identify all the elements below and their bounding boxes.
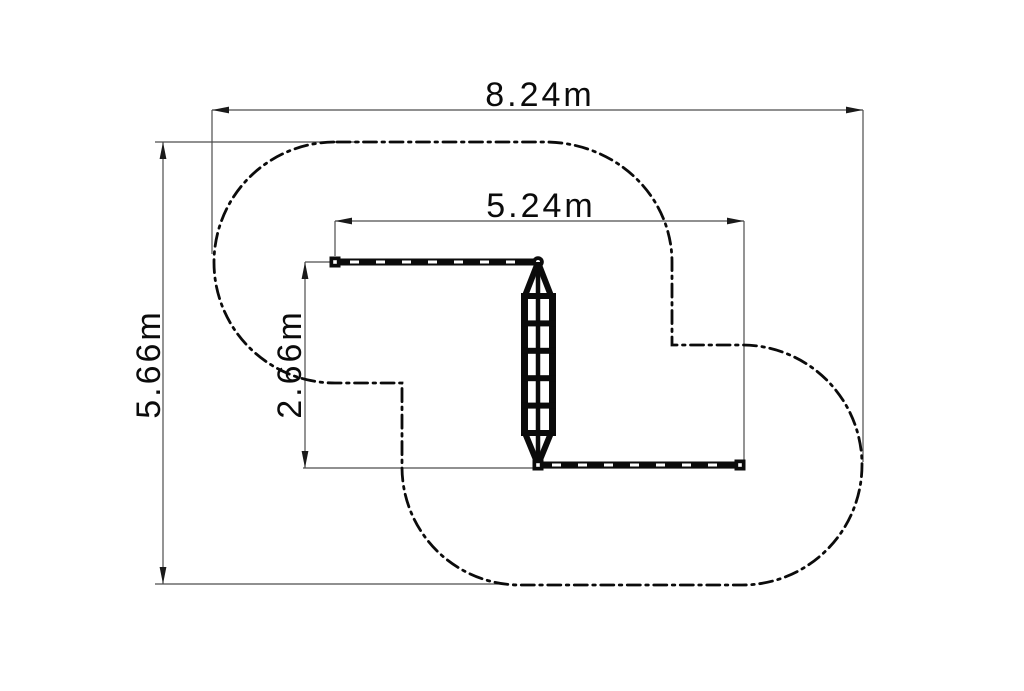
plan-drawing: 8.24m 5.24m 5.66m 2.66m <box>0 0 1024 691</box>
net-rail-right <box>549 293 556 433</box>
post-marker-hole <box>333 260 337 264</box>
post-marker-hole <box>738 463 742 467</box>
net-rung <box>521 320 556 326</box>
arrow-icon <box>160 142 167 159</box>
arrow-icon <box>302 262 309 279</box>
arrow-icon <box>160 567 167 584</box>
net-taper-line <box>525 433 537 461</box>
drawing-canvas: 8.24m 5.24m 5.66m 2.66m <box>0 0 1024 691</box>
net-taper-line <box>525 265 538 297</box>
top-balance-beam <box>330 256 544 268</box>
dim-label-overall-depth: 5.66m <box>130 309 168 419</box>
arrow-icon <box>846 107 863 114</box>
arrow-icon <box>302 451 309 468</box>
post-marker-hole <box>536 463 540 467</box>
net-taper-line <box>540 433 552 461</box>
net-rung <box>521 403 556 409</box>
net-rung <box>521 348 556 354</box>
net-taper-line <box>539 265 552 297</box>
net-rung <box>521 293 556 299</box>
arrow-icon <box>727 218 744 225</box>
bottom-balance-beam <box>533 460 746 471</box>
net-rung <box>521 375 556 381</box>
arrow-icon <box>335 218 352 225</box>
dim-label-overall-width: 8.24m <box>485 76 595 114</box>
dim-label-equipment-depth: 2.66m <box>271 309 309 419</box>
net-rail-left <box>521 293 528 433</box>
arrow-icon <box>212 107 229 114</box>
dim-label-equipment-width: 5.24m <box>486 187 596 225</box>
climbing-net <box>521 262 556 464</box>
